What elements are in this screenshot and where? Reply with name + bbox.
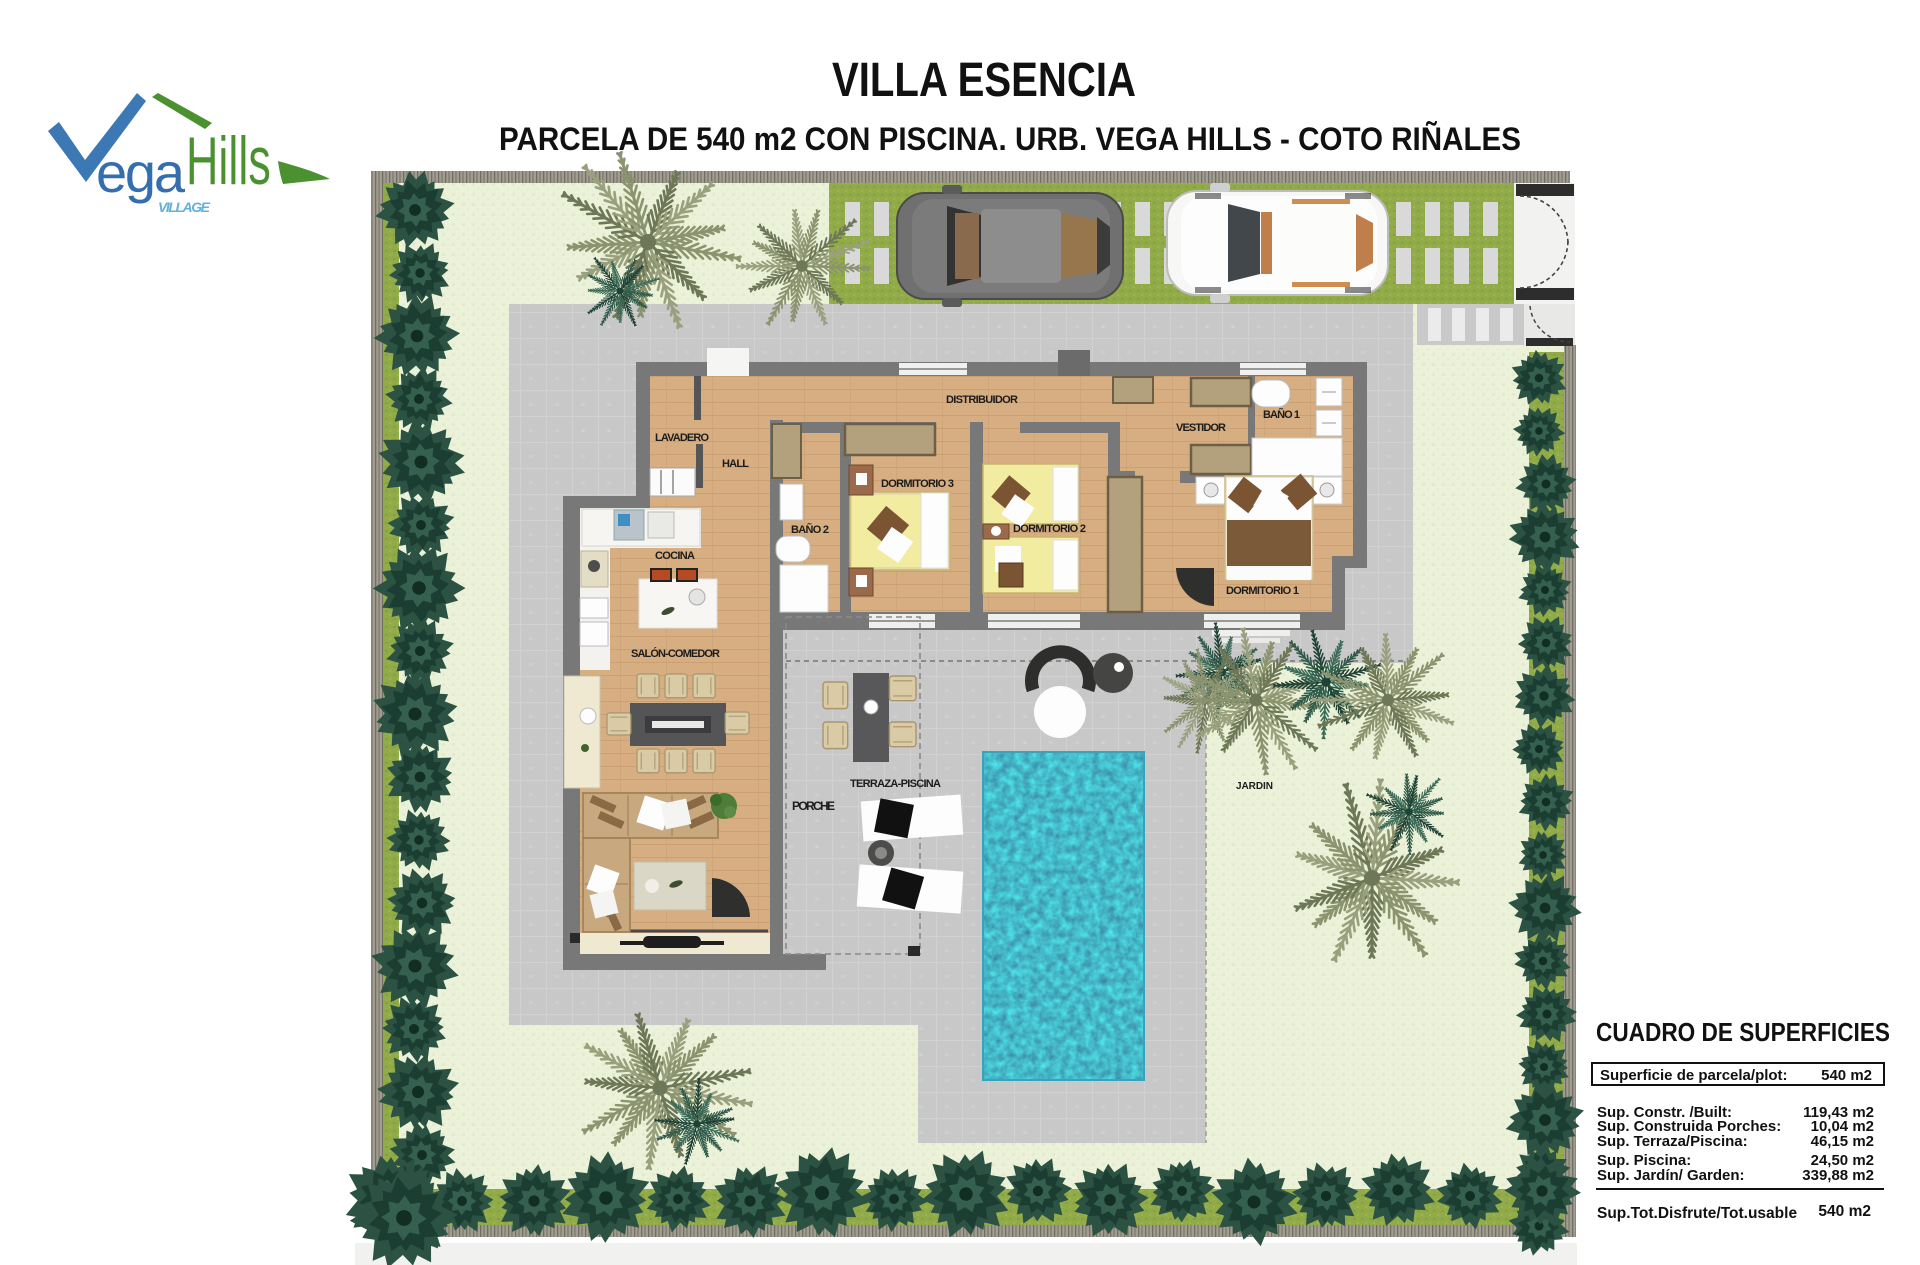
svg-text:DORMITORIO 3: DORMITORIO 3	[881, 478, 954, 490]
svg-text:DORMITORIO 2: DORMITORIO 2	[1013, 523, 1086, 535]
svg-text:TERRAZA-PISCINA: TERRAZA-PISCINA	[850, 778, 941, 790]
svg-text:Superficie de parcela/plot:: Superficie de parcela/plot:	[1600, 1067, 1788, 1084]
svg-text:BAÑO 2: BAÑO 2	[791, 523, 829, 536]
svg-text:HALL: HALL	[722, 458, 749, 470]
svg-text:Sup. Jardín/ Garden:: Sup. Jardín/ Garden:	[1597, 1167, 1745, 1184]
svg-text:540 m2: 540 m2	[1821, 1067, 1872, 1084]
svg-text:Hills: Hills	[186, 124, 271, 200]
svg-text:CUADRO DE SUPERFICIES: CUADRO DE SUPERFICIES	[1596, 1017, 1890, 1047]
svg-text:DORMITORIO 1: DORMITORIO 1	[1226, 585, 1299, 597]
svg-text:339,88 m2: 339,88 m2	[1802, 1167, 1874, 1184]
svg-text:Sup. Terraza/Piscina:: Sup. Terraza/Piscina:	[1597, 1133, 1748, 1150]
svg-text:SALÓN-COMEDOR: SALÓN-COMEDOR	[631, 647, 720, 660]
svg-text:JARDIN: JARDIN	[1236, 781, 1273, 792]
svg-text:PORCHE: PORCHE	[792, 799, 835, 813]
svg-text:COCINA: COCINA	[655, 550, 695, 562]
svg-text:DISTRIBUIDOR: DISTRIBUIDOR	[946, 394, 1018, 406]
svg-text:ega: ega	[96, 141, 186, 204]
svg-text:PARCELA DE 540 m2 CON PISCINA.: PARCELA DE 540 m2 CON PISCINA. URB. VEGA…	[499, 121, 1521, 157]
svg-text:BAÑO 1: BAÑO 1	[1263, 408, 1300, 421]
svg-text:46,15 m2: 46,15 m2	[1811, 1133, 1874, 1150]
svg-text:VILLA ESENCIA: VILLA ESENCIA	[832, 54, 1136, 107]
svg-text:VESTIDOR: VESTIDOR	[1176, 422, 1226, 434]
svg-text:VILLAGE: VILLAGE	[158, 199, 213, 215]
svg-text:540 m2: 540 m2	[1818, 1203, 1871, 1220]
svg-text:Sup.Tot.Disfrute/Tot.usable: Sup.Tot.Disfrute/Tot.usable	[1597, 1205, 1797, 1222]
svg-text:LAVADERO: LAVADERO	[655, 432, 709, 444]
